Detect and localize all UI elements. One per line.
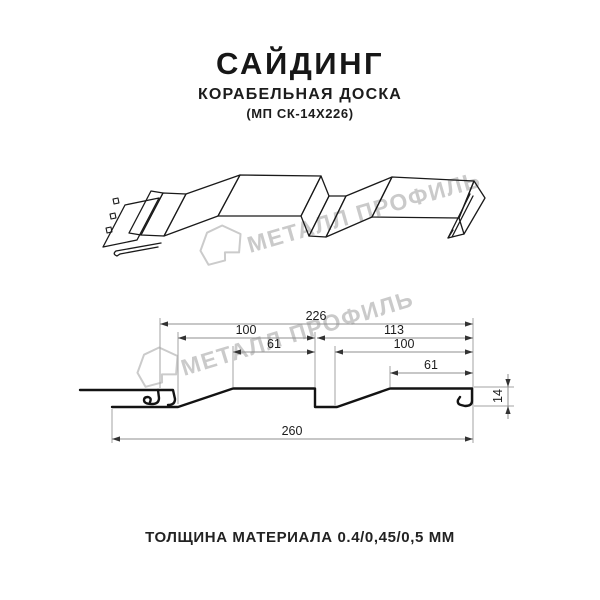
dim-label-14: 14 bbox=[491, 389, 505, 403]
metal-profil-logo-icon bbox=[197, 223, 244, 265]
dim-label-61-right: 61 bbox=[424, 358, 438, 372]
dim-label-260: 260 bbox=[282, 424, 303, 438]
technical-drawing-canvas: МЕТАЛЛ ПРОФИЛЬ bbox=[0, 0, 600, 600]
spec-sheet-page: САЙДИНГ КОРАБЕЛЬНАЯ ДОСКА (МП СК-14Х226)… bbox=[0, 0, 600, 600]
dim-label-113: 113 bbox=[384, 323, 404, 337]
dim-label-100-left: 100 bbox=[236, 323, 257, 337]
material-thickness-note: ТОЛЩИНА МАТЕРИАЛА 0.4/0,45/0,5 ММ bbox=[0, 529, 600, 546]
dim-label-226: 226 bbox=[306, 309, 327, 323]
dim-label-100-right: 100 bbox=[394, 337, 415, 351]
dim-label-61-left: 61 bbox=[267, 337, 281, 351]
watermark-brand-lower: МЕТАЛЛ ПРОФИЛЬ bbox=[178, 285, 417, 381]
profile-cross-section bbox=[80, 389, 472, 408]
metal-profil-logo-icon bbox=[134, 345, 181, 387]
